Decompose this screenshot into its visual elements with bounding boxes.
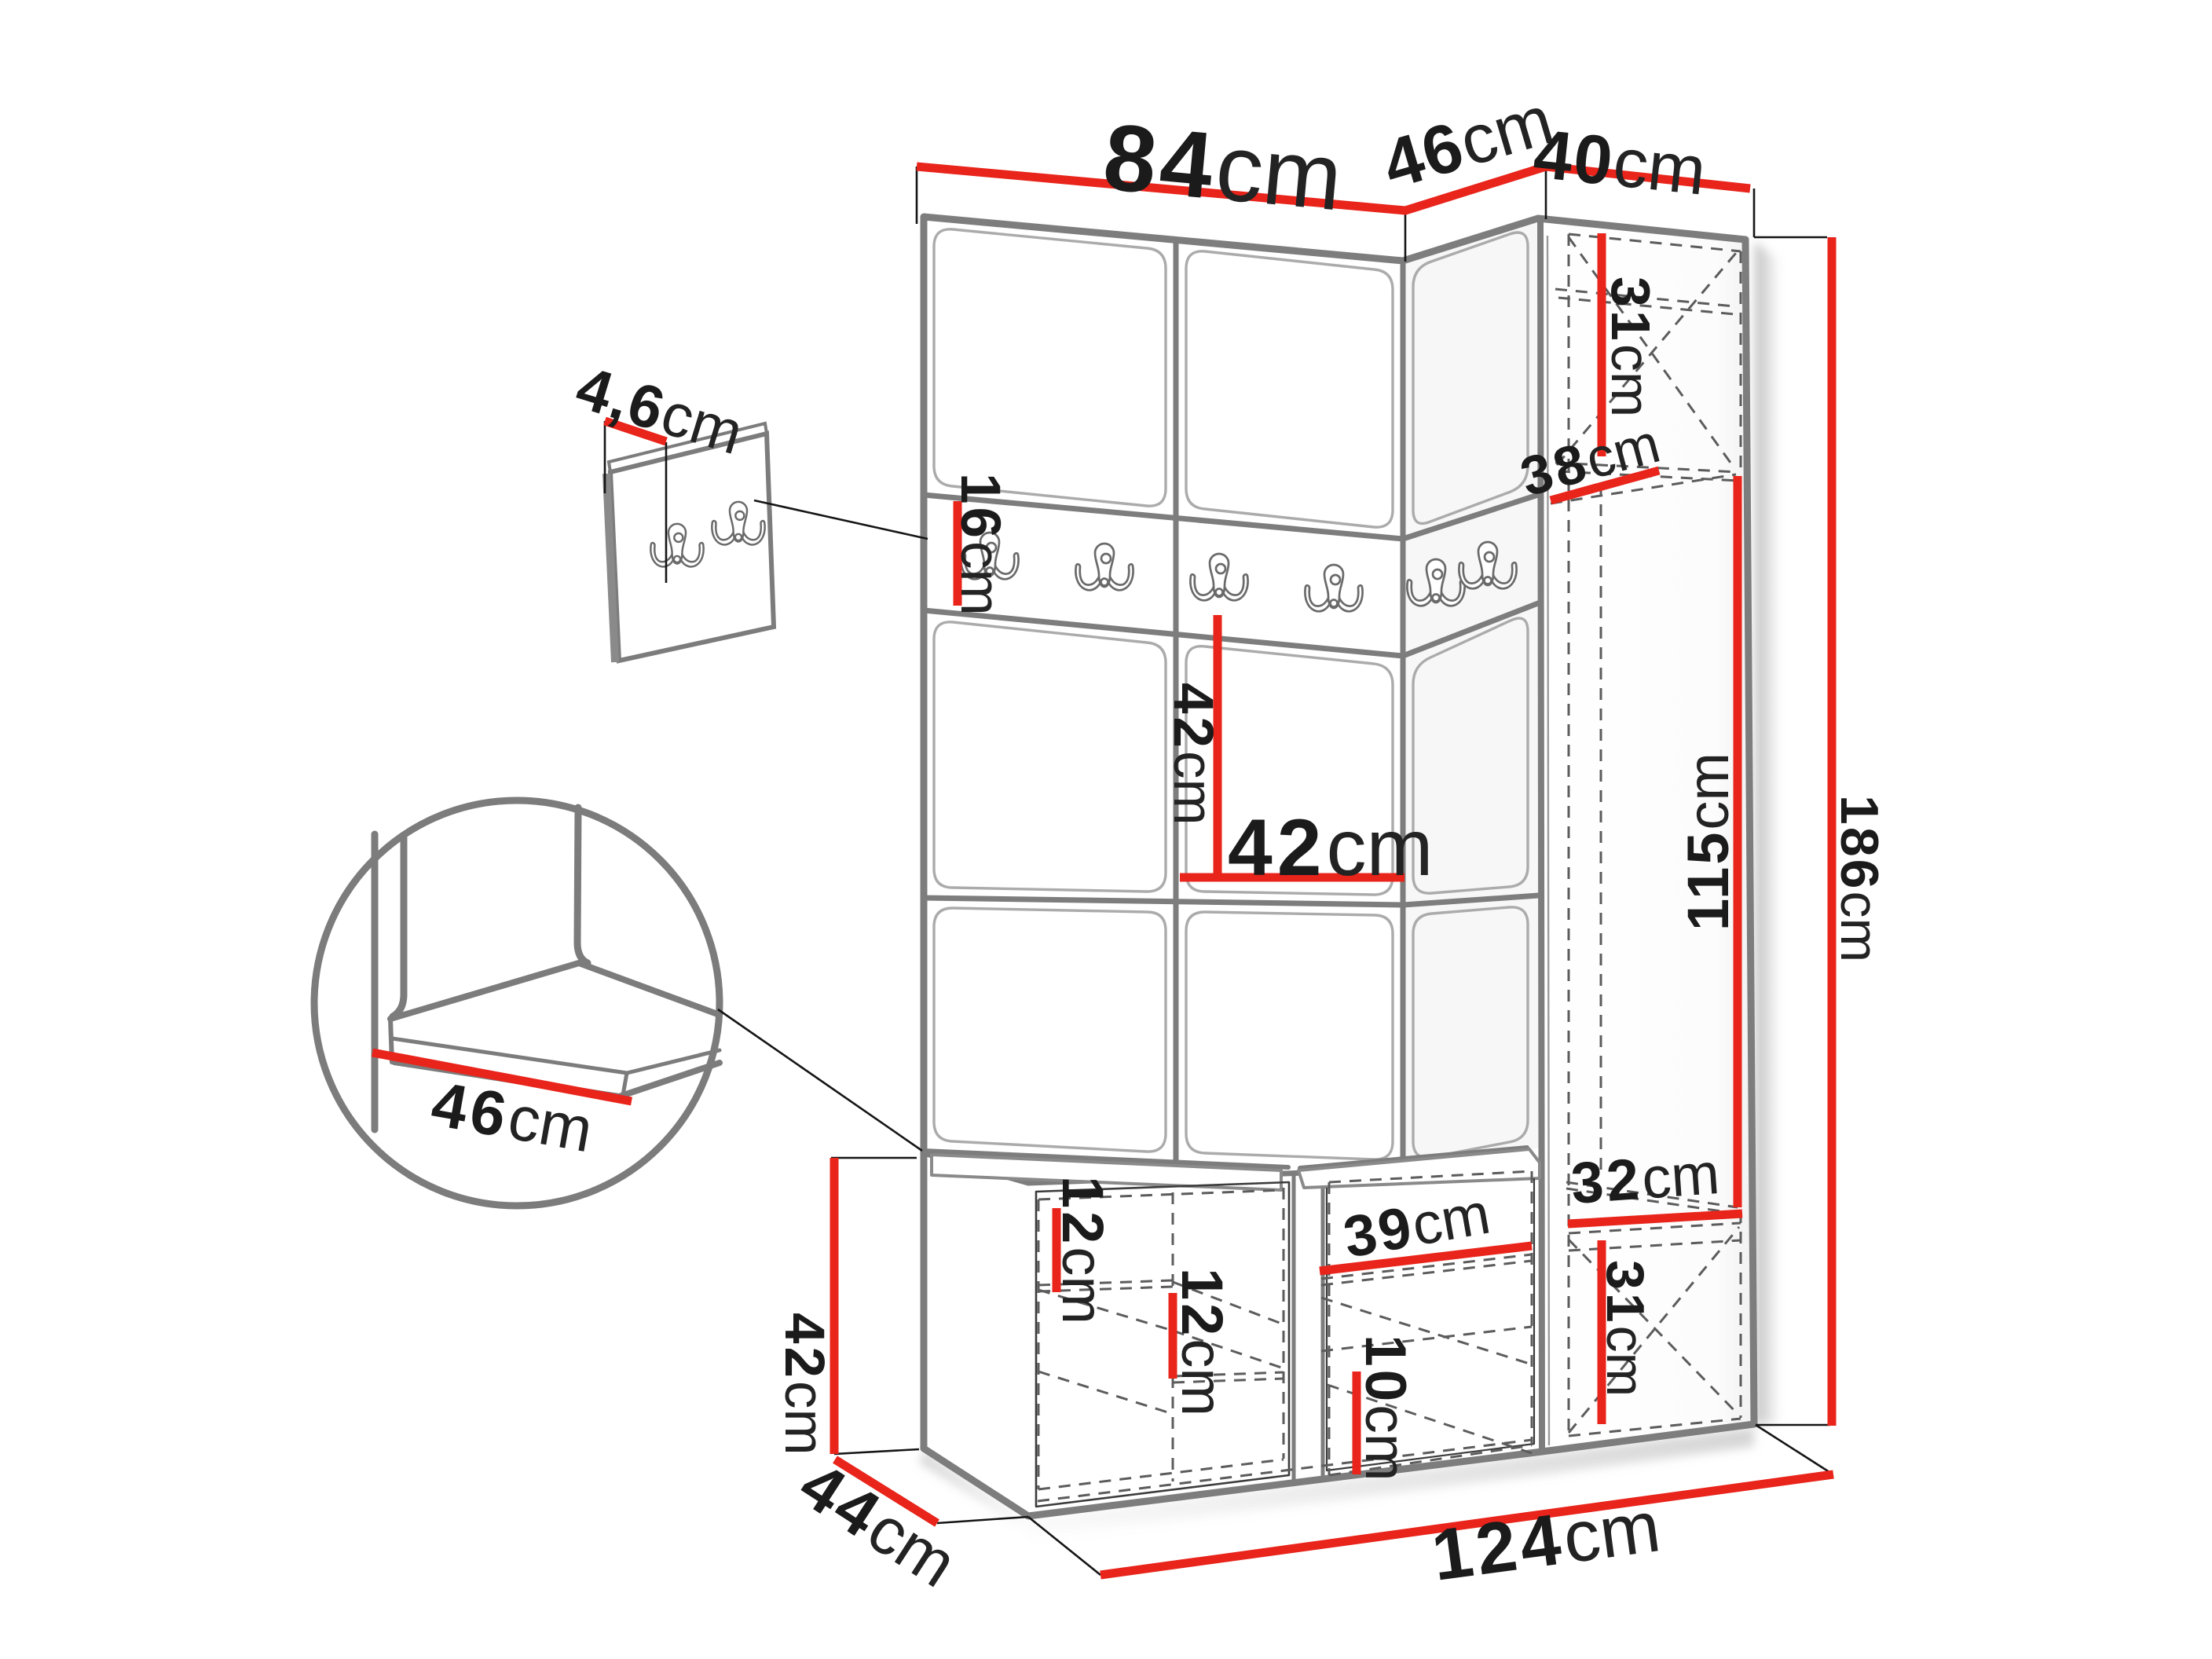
svg-text:42cm: 42cm xyxy=(1162,683,1224,826)
svg-text:186cm: 186cm xyxy=(1829,795,1889,962)
svg-text:12cm: 12cm xyxy=(1050,1176,1115,1324)
svg-text:115cm: 115cm xyxy=(1675,753,1741,931)
svg-text:31cm: 31cm xyxy=(1595,1260,1655,1397)
svg-text:84cm: 84cm xyxy=(1100,104,1346,230)
svg-text:16cm: 16cm xyxy=(949,473,1011,616)
svg-text:42cm: 42cm xyxy=(1228,803,1433,892)
svg-text:10cm: 10cm xyxy=(1353,1335,1417,1481)
svg-text:40cm: 40cm xyxy=(1530,114,1709,209)
svg-text:124cm: 124cm xyxy=(1427,1486,1664,1596)
svg-text:31cm: 31cm xyxy=(1600,276,1661,417)
svg-text:42cm: 42cm xyxy=(773,1313,835,1456)
svg-text:32cm: 32cm xyxy=(1569,1141,1721,1216)
svg-text:12cm: 12cm xyxy=(1170,1268,1235,1416)
